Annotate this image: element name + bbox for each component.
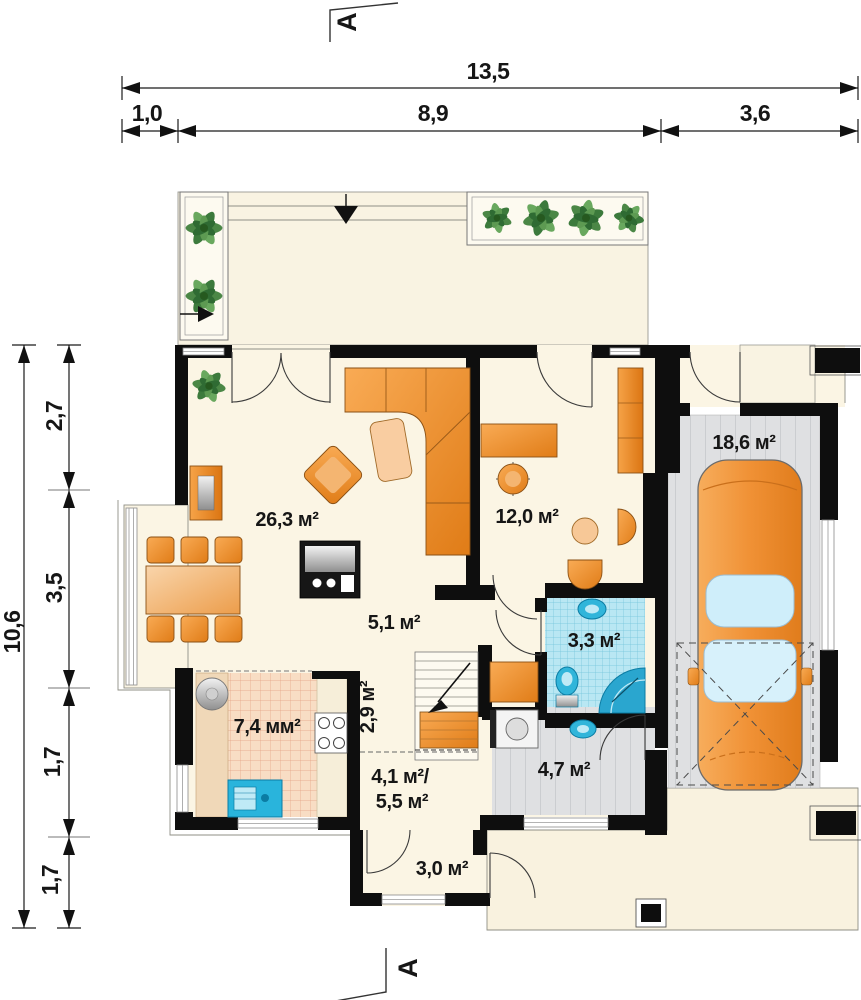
car-rear-window	[706, 575, 794, 627]
utility-sink	[570, 720, 596, 738]
kitchen-sink	[228, 780, 282, 817]
room-label-vestibule: 3,0 м²	[416, 858, 469, 880]
dim-left-seg-1: 2,7	[41, 401, 67, 431]
floor-plan-drawing: 26,3 м² 12,0 м² 18,6 м² 5,1 м² 3,3 м² 7,…	[0, 0, 861, 1000]
dim-top-total: 13,5	[467, 58, 510, 84]
window-study-top	[610, 348, 640, 355]
room-label-hallway-1: 4,1 м²/	[371, 766, 429, 788]
window-kitchen-bottom	[238, 819, 318, 828]
section-letter-top: A	[332, 12, 362, 32]
toilet	[556, 667, 578, 707]
tub-chair-bottom	[568, 560, 602, 589]
dining-table	[146, 566, 240, 614]
fireplace	[190, 466, 222, 520]
dim-left-seg-3: 1,7	[39, 747, 65, 777]
section-marker-bottom: A	[330, 948, 423, 1000]
room-label-hallway-2: 5,5 м²	[376, 791, 429, 813]
section-marker-top: A	[330, 3, 398, 42]
room-label-pantry: 2,9 м²	[357, 680, 379, 733]
washing-machine	[490, 710, 538, 748]
stove	[315, 713, 347, 753]
room-label-garage: 18,6 м²	[712, 432, 776, 454]
window-vestibule	[382, 895, 445, 904]
car-mirror-left	[688, 668, 699, 685]
tv-cabinet	[300, 541, 360, 598]
floor-plan-page: 26,3 м² 12,0 м² 18,6 м² 5,1 м² 3,3 м² 7,…	[0, 0, 861, 1000]
bath-basin	[578, 599, 606, 619]
dim-top-seg-1: 1,0	[132, 100, 162, 126]
room-label-utility: 4,7 м²	[538, 759, 591, 781]
dimension-left: 10,6 2,7 3,5 1,7 1,7	[0, 345, 90, 928]
dim-top-seg-3: 3,6	[740, 100, 770, 126]
room-label-bathroom: 3,3 м²	[568, 630, 621, 652]
dim-top-seg-2: 8,9	[418, 100, 448, 126]
dimension-top: 13,5 1,0 8,9 3,6	[122, 58, 858, 143]
fridge	[196, 678, 228, 710]
porch-top-right	[740, 345, 815, 403]
dining-set	[146, 537, 242, 642]
wardrobe	[618, 368, 643, 473]
hall-cabinet	[490, 662, 538, 702]
section-letter-bottom: A	[393, 958, 423, 978]
dim-left-total: 10,6	[0, 611, 25, 654]
window-garage-right	[822, 520, 834, 650]
room-label-study: 12,0 м²	[495, 506, 559, 528]
window-bay	[126, 508, 137, 685]
window-utility-bottom	[524, 818, 608, 827]
terrace-column-core	[641, 904, 661, 922]
room-label-hall-small: 5,1 м²	[368, 612, 421, 634]
staircase	[415, 652, 478, 760]
room-label-living: 26,3 м²	[255, 509, 319, 531]
dim-left-seg-2: 3,5	[41, 572, 67, 603]
desk	[481, 424, 557, 457]
dim-left-seg-4: 1,7	[37, 865, 63, 895]
car	[688, 460, 812, 790]
car-windshield	[704, 640, 796, 702]
window-living-top	[183, 348, 224, 355]
side-table	[572, 518, 598, 544]
window-kitchen-left	[177, 765, 188, 812]
room-label-kitchen: 7,4 мм²	[234, 716, 302, 738]
car-mirror-right	[801, 668, 812, 685]
